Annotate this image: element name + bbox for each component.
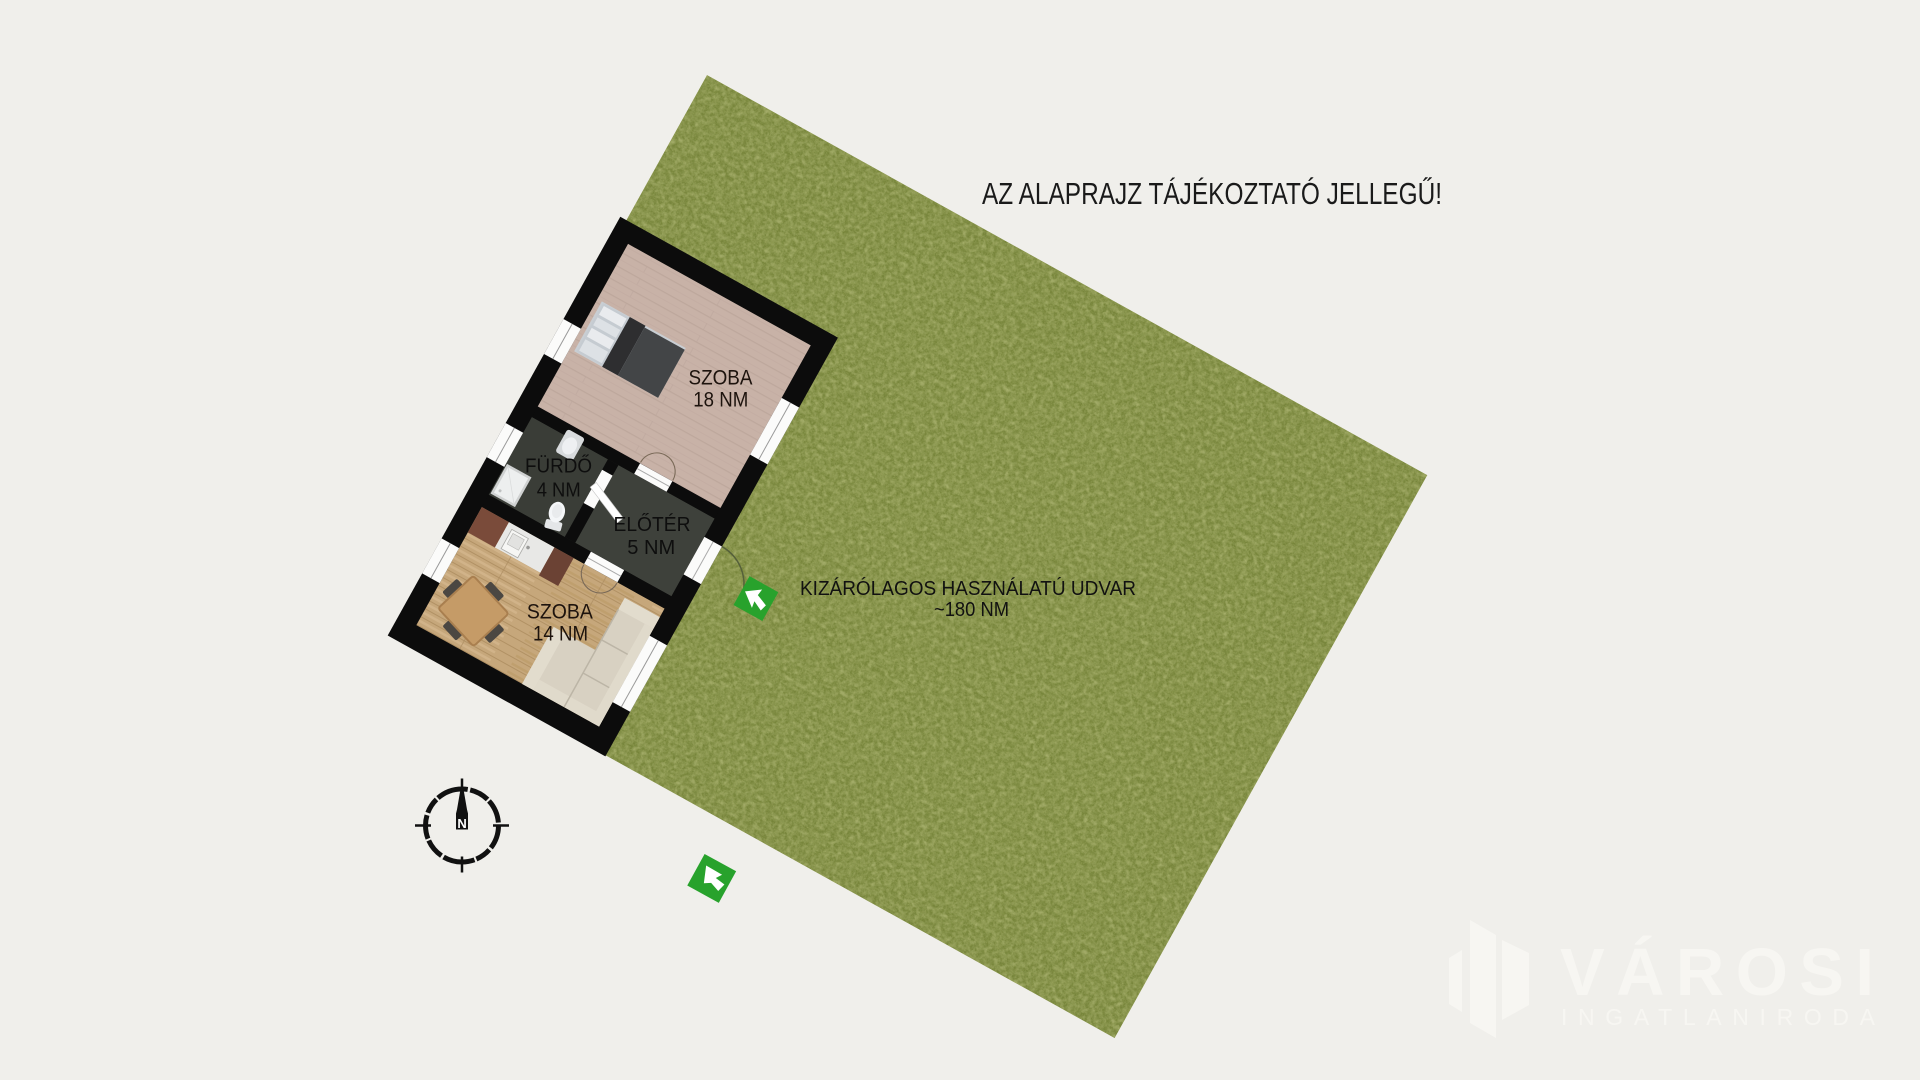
svg-text:AZ ALAPRAJZ TÁJÉKOZTATÓ JELLEG: AZ ALAPRAJZ TÁJÉKOZTATÓ JELLEGŰ! xyxy=(982,176,1442,211)
svg-text:SZOBA: SZOBA xyxy=(689,366,753,389)
svg-text:~180 NM: ~180 NM xyxy=(934,599,1009,621)
svg-text:14 NM: 14 NM xyxy=(533,623,588,646)
svg-text:5 NM: 5 NM xyxy=(627,537,675,559)
svg-text:VÁROSI: VÁROSI xyxy=(1560,935,1886,1010)
svg-text:FÜRDŐ: FÜRDŐ xyxy=(525,454,592,477)
svg-text:KIZÁRÓLAGOS HASZNÁLATÚ UDVAR: KIZÁRÓLAGOS HASZNÁLATÚ UDVAR xyxy=(800,577,1136,600)
svg-text:INGATLANIRODA: INGATLANIRODA xyxy=(1561,1004,1886,1030)
svg-text:N: N xyxy=(457,816,466,831)
svg-text:4 NM: 4 NM xyxy=(537,480,581,502)
svg-text:ELŐTÉR: ELŐTÉR xyxy=(614,513,691,536)
svg-text:SZOBA: SZOBA xyxy=(527,601,593,624)
svg-text:18 NM: 18 NM xyxy=(693,388,748,411)
